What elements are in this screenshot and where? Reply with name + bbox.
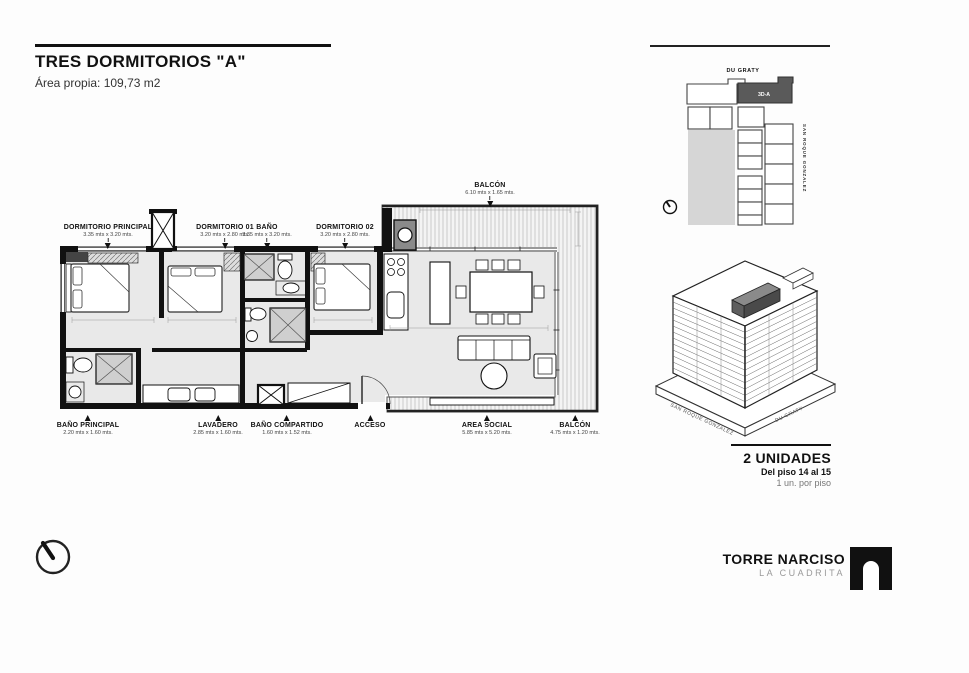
page-subtitle: Área propia: 109,73 m2 <box>35 76 160 90</box>
label-balcon-top: BALCÓN 6.10 mts x 1.65 mts. <box>465 182 515 207</box>
mini-compass-icon <box>664 201 677 214</box>
arrow-down-icon <box>222 243 228 249</box>
label-acceso: ACCESO <box>354 415 385 430</box>
label-dormitorio-principal: DORMITORIO PRINCIPAL 3.35 mts x 3.20 mts… <box>64 224 153 249</box>
brand-name: TORRE NARCISO <box>645 551 845 567</box>
brand-block: TORRE NARCISO LA CUADRITA <box>645 551 845 578</box>
arch-logo-icon <box>850 547 892 590</box>
arrow-down-icon <box>342 243 348 249</box>
label-dormitorio-02: DORMITORIO 02 3.20 mts x 2.80 mts. <box>316 224 374 249</box>
units-floors: Del piso 14 al 15 <box>641 467 831 477</box>
leader-line <box>490 196 491 200</box>
balcony-bench <box>430 398 554 405</box>
label-balcon-bottom: BALCÓN 4.75 mts x 1.20 mts. <box>550 415 600 436</box>
units-info-block: 2 UNIDADES Del piso 14 al 15 1 un. por p… <box>641 450 831 488</box>
arrow-up-icon <box>484 415 490 421</box>
leader-line <box>344 238 345 242</box>
unit-code-label: 3D-A <box>758 92 770 98</box>
highlighted-unit: 3D-A <box>738 77 793 103</box>
courtyard <box>688 130 735 225</box>
street-label-san-roque: SAN ROQUE GONZALEZ <box>802 124 807 192</box>
street-label-du-graty: DU GRATY <box>726 68 759 74</box>
units-per-floor: 1 un. por piso <box>641 478 831 488</box>
master-bedroom-furniture <box>66 252 138 312</box>
label-bano: BAÑO 3.35 mts x 3.20 mts. <box>242 224 292 249</box>
arrow-down-icon <box>487 201 493 207</box>
page-title: TRES DORMITORIOS "A" <box>35 52 246 72</box>
laundry-fixtures <box>143 385 239 403</box>
label-bano-compartido: BAÑO COMPARTIDO 1.60 mts x 1.52 mts. <box>251 415 324 436</box>
right-column-rule <box>650 45 830 47</box>
floorplan-sheet: TRES DORMITORIOS "A" Área propia: 109,73… <box>0 0 969 673</box>
site-plan: DU GRATY 3D-A SAN ROQUE GONZALEZ <box>650 52 845 227</box>
arrow-down-icon <box>264 243 270 249</box>
arrow-up-icon <box>215 415 221 421</box>
entry-closet <box>288 383 350 403</box>
service-shaft <box>149 209 177 251</box>
north-compass-icon <box>30 534 76 580</box>
label-area-social: AREA SOCIAL 5.85 mts x 5.20 mts. <box>462 415 512 436</box>
leader-line <box>267 238 268 242</box>
label-lavadero: LAVADERO 2.85 mts x 1.60 mts. <box>193 415 243 436</box>
units-rule <box>731 444 831 446</box>
leader-line <box>224 238 225 242</box>
leader-line <box>108 238 109 242</box>
units-count: 2 UNIDADES <box>641 450 831 466</box>
arrow-down-icon <box>105 243 111 249</box>
title-rule <box>35 44 331 47</box>
brand-subtitle: LA CUADRITA <box>645 568 845 578</box>
arrow-up-icon <box>572 415 578 421</box>
label-bano-principal: BAÑO PRINCIPAL 2.20 mts x 1.60 mts. <box>57 415 120 436</box>
arrow-up-icon <box>85 415 91 421</box>
axonometric-building: SAN ROQUE GONZALEZ DU GRATY <box>648 248 843 440</box>
arrow-up-icon <box>284 415 290 421</box>
duct-box <box>258 385 284 405</box>
arrow-up-icon <box>367 415 373 421</box>
